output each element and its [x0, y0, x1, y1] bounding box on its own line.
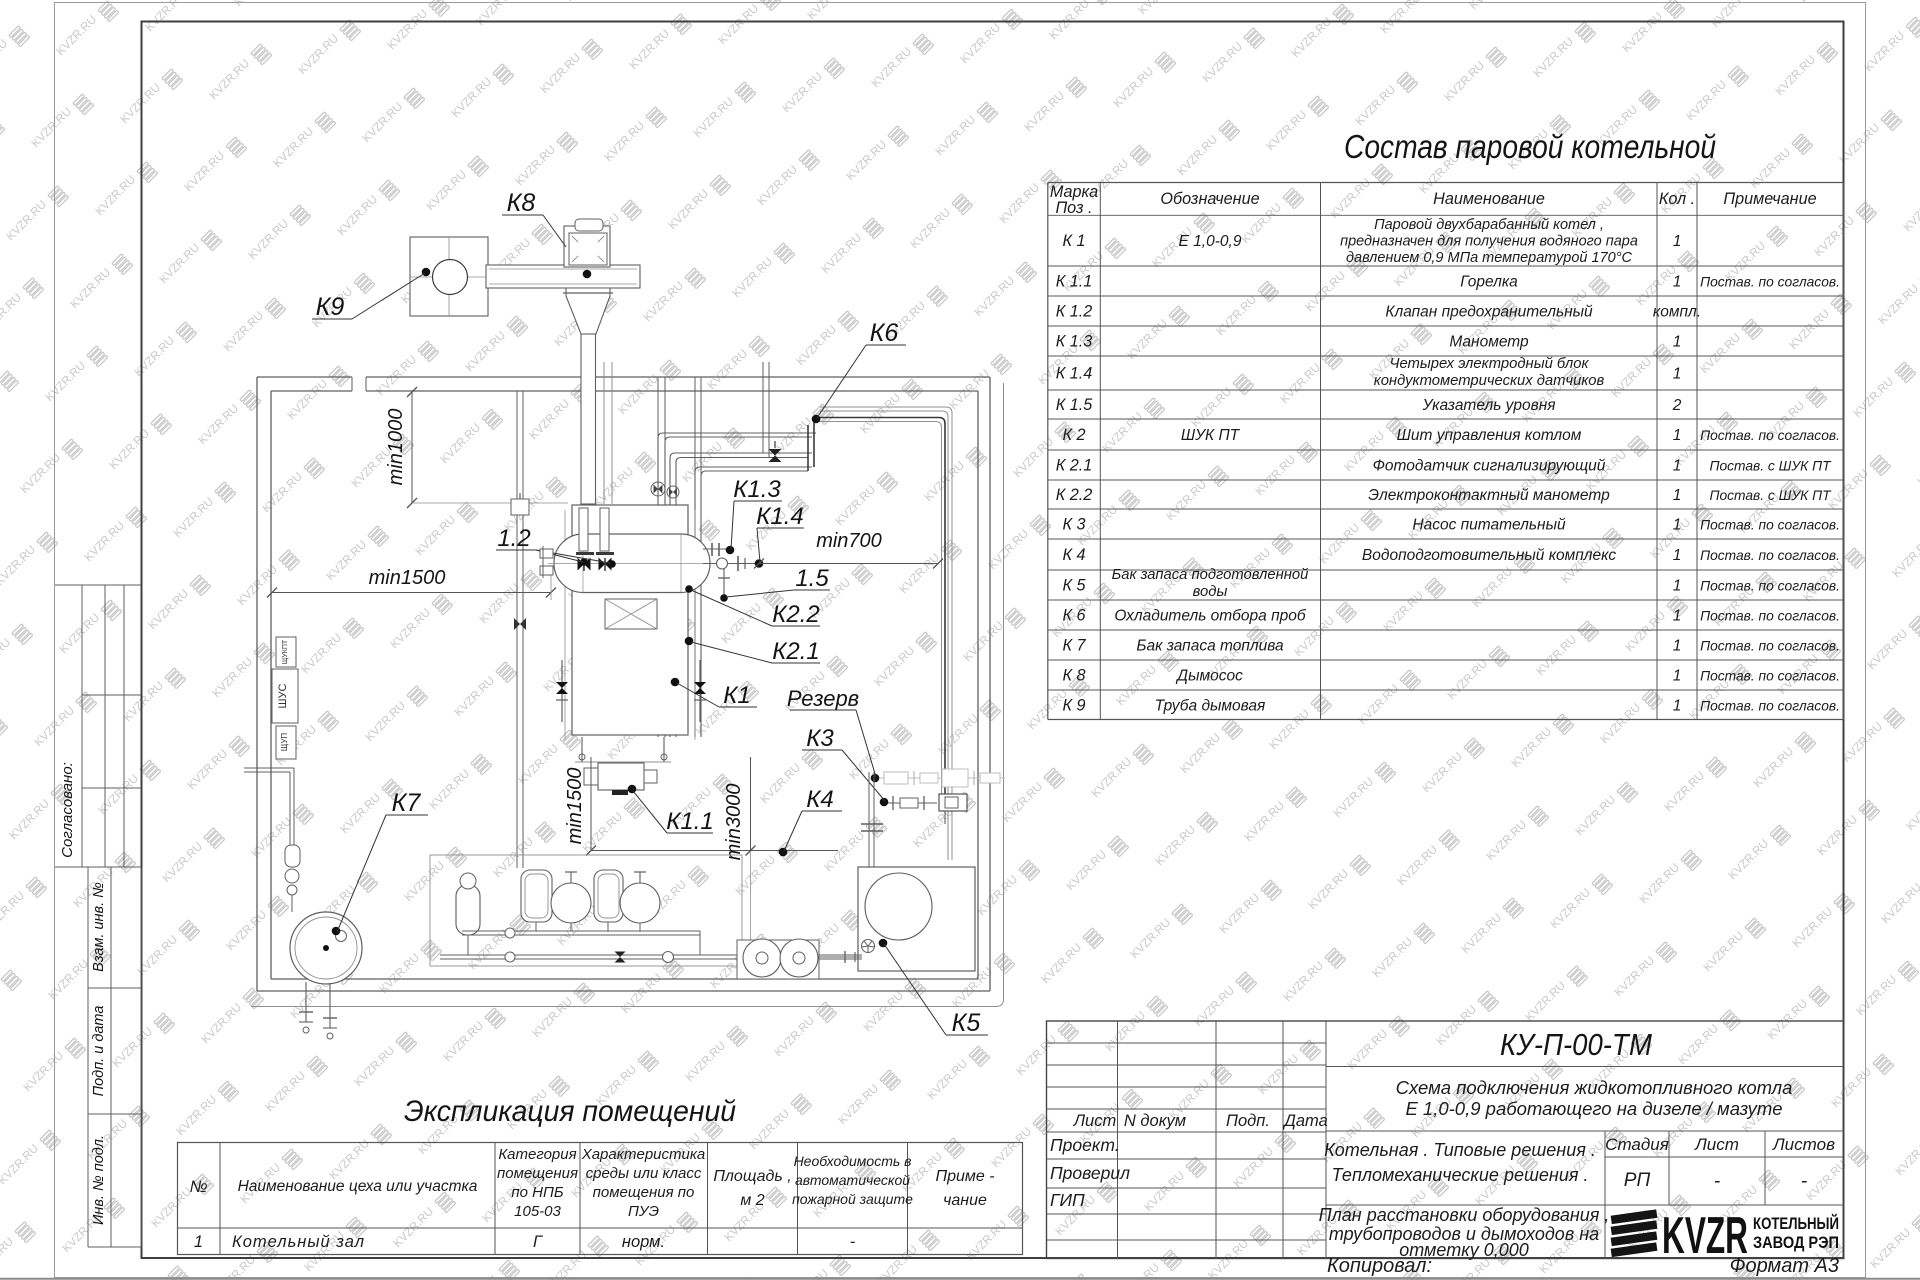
svg-text:N докум: N докум: [1124, 1112, 1186, 1130]
svg-text:План расстановки оборудования: План расстановки оборудования ,: [1319, 1205, 1610, 1225]
svg-text:Клапан предохранительный: Клапан предохранительный: [1385, 304, 1593, 321]
svg-text:Копировал:: Копировал:: [1327, 1255, 1432, 1277]
svg-text:Постав. по согласов.: Постав. по согласов.: [1700, 669, 1840, 684]
svg-text:Г: Г: [533, 1233, 543, 1251]
svg-text:min3000: min3000: [723, 784, 745, 861]
svg-text:Состав паровой котельной: Состав паровой котельной: [1344, 128, 1716, 165]
svg-text:К3: К3: [806, 725, 834, 752]
svg-text:К 8: К 8: [1062, 667, 1085, 685]
svg-text:1: 1: [1673, 697, 1682, 714]
svg-text:К1.4: К1.4: [756, 503, 804, 530]
svg-text:автоматической: автоматической: [795, 1172, 910, 1188]
svg-text:Котельный зал: Котельный зал: [232, 1233, 365, 1251]
svg-text:№: №: [190, 1178, 208, 1196]
svg-text:1: 1: [1673, 458, 1682, 475]
svg-text:Четырех электродный блок: Четырех электродный блок: [1390, 356, 1590, 372]
svg-text:К 2: К 2: [1062, 426, 1085, 444]
svg-text:ЩУП: ЩУП: [280, 733, 289, 752]
svg-text:1: 1: [1673, 668, 1682, 685]
svg-text:ЩУКПТ: ЩУКПТ: [282, 639, 289, 664]
svg-text:Тепломеханические решения .: Тепломеханические решения .: [1332, 1165, 1589, 1185]
svg-text:1: 1: [1673, 547, 1682, 564]
svg-text:-: -: [850, 1233, 856, 1251]
svg-text:KVZR: KVZR: [1662, 1207, 1748, 1265]
svg-text:Электроконтактный манометр: Электроконтактный манометр: [1368, 487, 1610, 504]
svg-text:К 2.1: К 2.1: [1056, 457, 1093, 475]
svg-text:Фотодатчик сигнализирующий: Фотодатчик сигнализирующий: [1373, 458, 1606, 475]
svg-text:Листов: Листов: [1772, 1135, 1835, 1154]
svg-text:Постав. по согласов.: Постав. по согласов.: [1700, 518, 1840, 533]
svg-text:Инв. № подл.: Инв. № подл.: [91, 1135, 107, 1225]
svg-text:105-03: 105-03: [514, 1203, 561, 1220]
svg-text:К7: К7: [392, 789, 422, 817]
svg-text:КОТЕЛЬНЫЙ: КОТЕЛЬНЫЙ: [1753, 1214, 1839, 1233]
svg-text:Горелка: Горелка: [1460, 274, 1518, 291]
svg-text:min1500: min1500: [369, 567, 446, 589]
svg-text:Бак запаса подготовленной: Бак запаса подготовленной: [1112, 567, 1309, 583]
svg-text:Примечание: Примечание: [1723, 190, 1816, 208]
svg-text:ГИП: ГИП: [1050, 1190, 1085, 1210]
svg-text:Постав. по согласов.: Постав. по согласов.: [1700, 428, 1840, 443]
svg-text:К 1.5: К 1.5: [1056, 396, 1094, 414]
svg-text:Поз .: Поз .: [1055, 199, 1092, 217]
svg-text:предназначен для получения вод: предназначен для получения водяного пара: [1340, 234, 1638, 250]
svg-text:Подп.: Подп.: [1226, 1112, 1270, 1130]
svg-text:К4: К4: [806, 786, 834, 813]
svg-text:давлением 0,9 МПа температу: давлением 0,9 МПа температурой 170°С: [1346, 250, 1633, 266]
svg-text:К9: К9: [316, 293, 345, 321]
svg-text:Проверил: Проверил: [1050, 1163, 1130, 1183]
svg-text:помещения: помещения: [497, 1165, 578, 1182]
svg-text:1.2: 1.2: [497, 525, 530, 552]
svg-text:К5: К5: [952, 1009, 981, 1037]
svg-text:норм.: норм.: [622, 1233, 665, 1251]
svg-text:1: 1: [1673, 366, 1682, 383]
svg-text:К 1.2: К 1.2: [1056, 303, 1093, 321]
svg-text:2: 2: [1672, 397, 1682, 414]
svg-text:Дата: Дата: [1282, 1112, 1328, 1130]
svg-text:Е 1,0-0,9: Е 1,0-0,9: [1179, 233, 1242, 250]
svg-text:Наименование: Наименование: [1433, 190, 1545, 208]
svg-text:min1500: min1500: [564, 768, 586, 845]
svg-text:Необходимость в: Необходимость в: [794, 1153, 912, 1169]
svg-text:Приме -: Приме -: [935, 1168, 994, 1185]
svg-text:Проект.: Проект.: [1050, 1135, 1120, 1155]
svg-text:Труба дымовая: Труба дымовая: [1155, 697, 1266, 714]
svg-text:1: 1: [1673, 517, 1682, 534]
svg-text:Котельная . Типовые решения .: Котельная . Типовые решения .: [1324, 1140, 1596, 1160]
svg-text:К2.1: К2.1: [772, 638, 820, 665]
svg-text:-: -: [1801, 1171, 1807, 1192]
svg-text:К 2.2: К 2.2: [1056, 486, 1093, 504]
svg-text:min700: min700: [816, 530, 882, 552]
svg-text:-: -: [1714, 1171, 1720, 1192]
svg-text:ЗАВОД РЭП: ЗАВОД РЭП: [1753, 1234, 1839, 1252]
svg-text:Охладитель отбора проб: Охладитель отбора проб: [1114, 608, 1306, 625]
svg-text:чание: чание: [943, 1192, 987, 1209]
svg-text:Паровой двухбарабанный котел ,: Паровой двухбарабанный котел ,: [1374, 217, 1604, 233]
svg-text:К1.3: К1.3: [733, 476, 781, 503]
svg-text:Дымосос: Дымосос: [1175, 668, 1243, 685]
svg-text:Стадия: Стадия: [1605, 1135, 1669, 1154]
svg-text:Площадь ,: Площадь ,: [713, 1168, 791, 1185]
svg-text:м 2: м 2: [740, 1192, 764, 1209]
svg-text:Указатель уровня: Указатель уровня: [1421, 397, 1555, 414]
svg-text:1: 1: [1673, 638, 1682, 655]
svg-text:К 7: К 7: [1062, 637, 1086, 655]
svg-text:Схема подключения жидкотопливн: Схема подключения жидкотопливного котла: [1396, 1077, 1793, 1098]
svg-text:Постав. по согласов.: Постав. по согласов.: [1700, 698, 1840, 713]
svg-text:К 1: К 1: [1062, 232, 1085, 250]
svg-text:Водоподготовительный комплекс: Водоподготовительный комплекс: [1362, 547, 1616, 564]
svg-text:К2.2: К2.2: [772, 601, 820, 628]
svg-text:К 5: К 5: [1062, 577, 1086, 595]
svg-text:1: 1: [1673, 608, 1682, 625]
svg-text:К8: К8: [507, 189, 536, 217]
svg-text:К 4: К 4: [1062, 546, 1085, 564]
svg-text:по НПБ: по НПБ: [511, 1184, 563, 1201]
svg-text:Бак запаса топлива: Бак запаса топлива: [1136, 638, 1284, 655]
svg-text:К 1.3: К 1.3: [1056, 333, 1093, 351]
svg-text:помещения по: помещения по: [593, 1184, 695, 1201]
svg-text:кондуктометрических датчиков: кондуктометрических датчиков: [1374, 373, 1605, 389]
svg-text:Лист: Лист: [1073, 1112, 1116, 1130]
svg-text:пожарной защите: пожарной защите: [792, 1191, 913, 1207]
svg-text:Манометр: Манометр: [1449, 334, 1529, 351]
svg-text:1: 1: [1673, 334, 1682, 351]
svg-text:К1.1: К1.1: [666, 808, 714, 835]
svg-text:Постав. по согласов.: Постав. по согласов.: [1700, 609, 1840, 624]
svg-text:Резерв: Резерв: [787, 686, 859, 711]
svg-text:Обозначение: Обозначение: [1160, 190, 1259, 208]
svg-text:КУ-П-00-ТМ: КУ-П-00-ТМ: [1500, 1027, 1652, 1062]
svg-text:min1000: min1000: [385, 409, 407, 486]
svg-text:Постав. по согласов.: Постав. по согласов.: [1700, 579, 1840, 594]
svg-text:1: 1: [1673, 578, 1682, 595]
svg-text:Насос питательный: Насос питательный: [1412, 517, 1566, 534]
svg-text:среды или класс: среды или класс: [586, 1165, 702, 1182]
svg-text:Подп. и дата: Подп. и дата: [91, 1006, 107, 1097]
svg-text:Постав. по согласов.: Постав. по согласов.: [1700, 548, 1840, 563]
svg-text:К 1.1: К 1.1: [1056, 273, 1093, 291]
svg-text:ПУЭ: ПУЭ: [628, 1203, 659, 1220]
svg-text:Наименование цеха или участка: Наименование цеха или участка: [238, 1178, 478, 1195]
svg-text:Лист: Лист: [1694, 1135, 1739, 1154]
svg-text:1: 1: [1673, 427, 1682, 444]
svg-text:К 3: К 3: [1062, 516, 1085, 534]
svg-text:К1: К1: [723, 682, 751, 709]
svg-text:Шит управления котлом: Шит управления котлом: [1397, 427, 1582, 444]
svg-text:Постав. с ШУК ПТ: Постав. с ШУК ПТ: [1709, 488, 1832, 503]
svg-text:Е 1,0-0,9 работающего на дизе: Е 1,0-0,9 работающего на дизеле / мазуте: [1405, 1098, 1782, 1119]
svg-text:К 9: К 9: [1062, 696, 1085, 714]
svg-text:Экспликация помещений: Экспликация помещений: [404, 1095, 736, 1128]
svg-text:1: 1: [194, 1233, 203, 1251]
svg-text:компл.: компл.: [1653, 304, 1701, 321]
svg-text:1: 1: [1673, 274, 1682, 291]
svg-text:1: 1: [1673, 487, 1682, 504]
svg-text:воды: воды: [1193, 584, 1228, 600]
svg-text:Постав. по согласов.: Постав. по согласов.: [1700, 639, 1840, 654]
svg-text:Согласовано:: Согласовано:: [59, 762, 76, 858]
svg-text:К 6: К 6: [1062, 607, 1085, 625]
svg-text:Постав. с ШУК ПТ: Постав. с ШУК ПТ: [1709, 459, 1832, 474]
svg-text:К 1.4: К 1.4: [1056, 365, 1093, 383]
svg-text:1.5: 1.5: [795, 565, 829, 592]
svg-text:К6: К6: [870, 319, 899, 347]
svg-text:Взам. инв. №: Взам. инв. №: [91, 882, 107, 972]
svg-text:ШУС: ШУС: [277, 683, 289, 708]
svg-text:Характеристика: Характеристика: [581, 1146, 706, 1163]
svg-text:РП: РП: [1624, 1170, 1651, 1191]
svg-text:ШУК ПТ: ШУК ПТ: [1181, 427, 1241, 444]
svg-text:Категория: Категория: [498, 1146, 576, 1163]
svg-text:Постав. по согласов.: Постав. по согласов.: [1700, 275, 1840, 290]
svg-text:Кол .: Кол .: [1659, 190, 1695, 208]
svg-text:1: 1: [1673, 233, 1682, 250]
